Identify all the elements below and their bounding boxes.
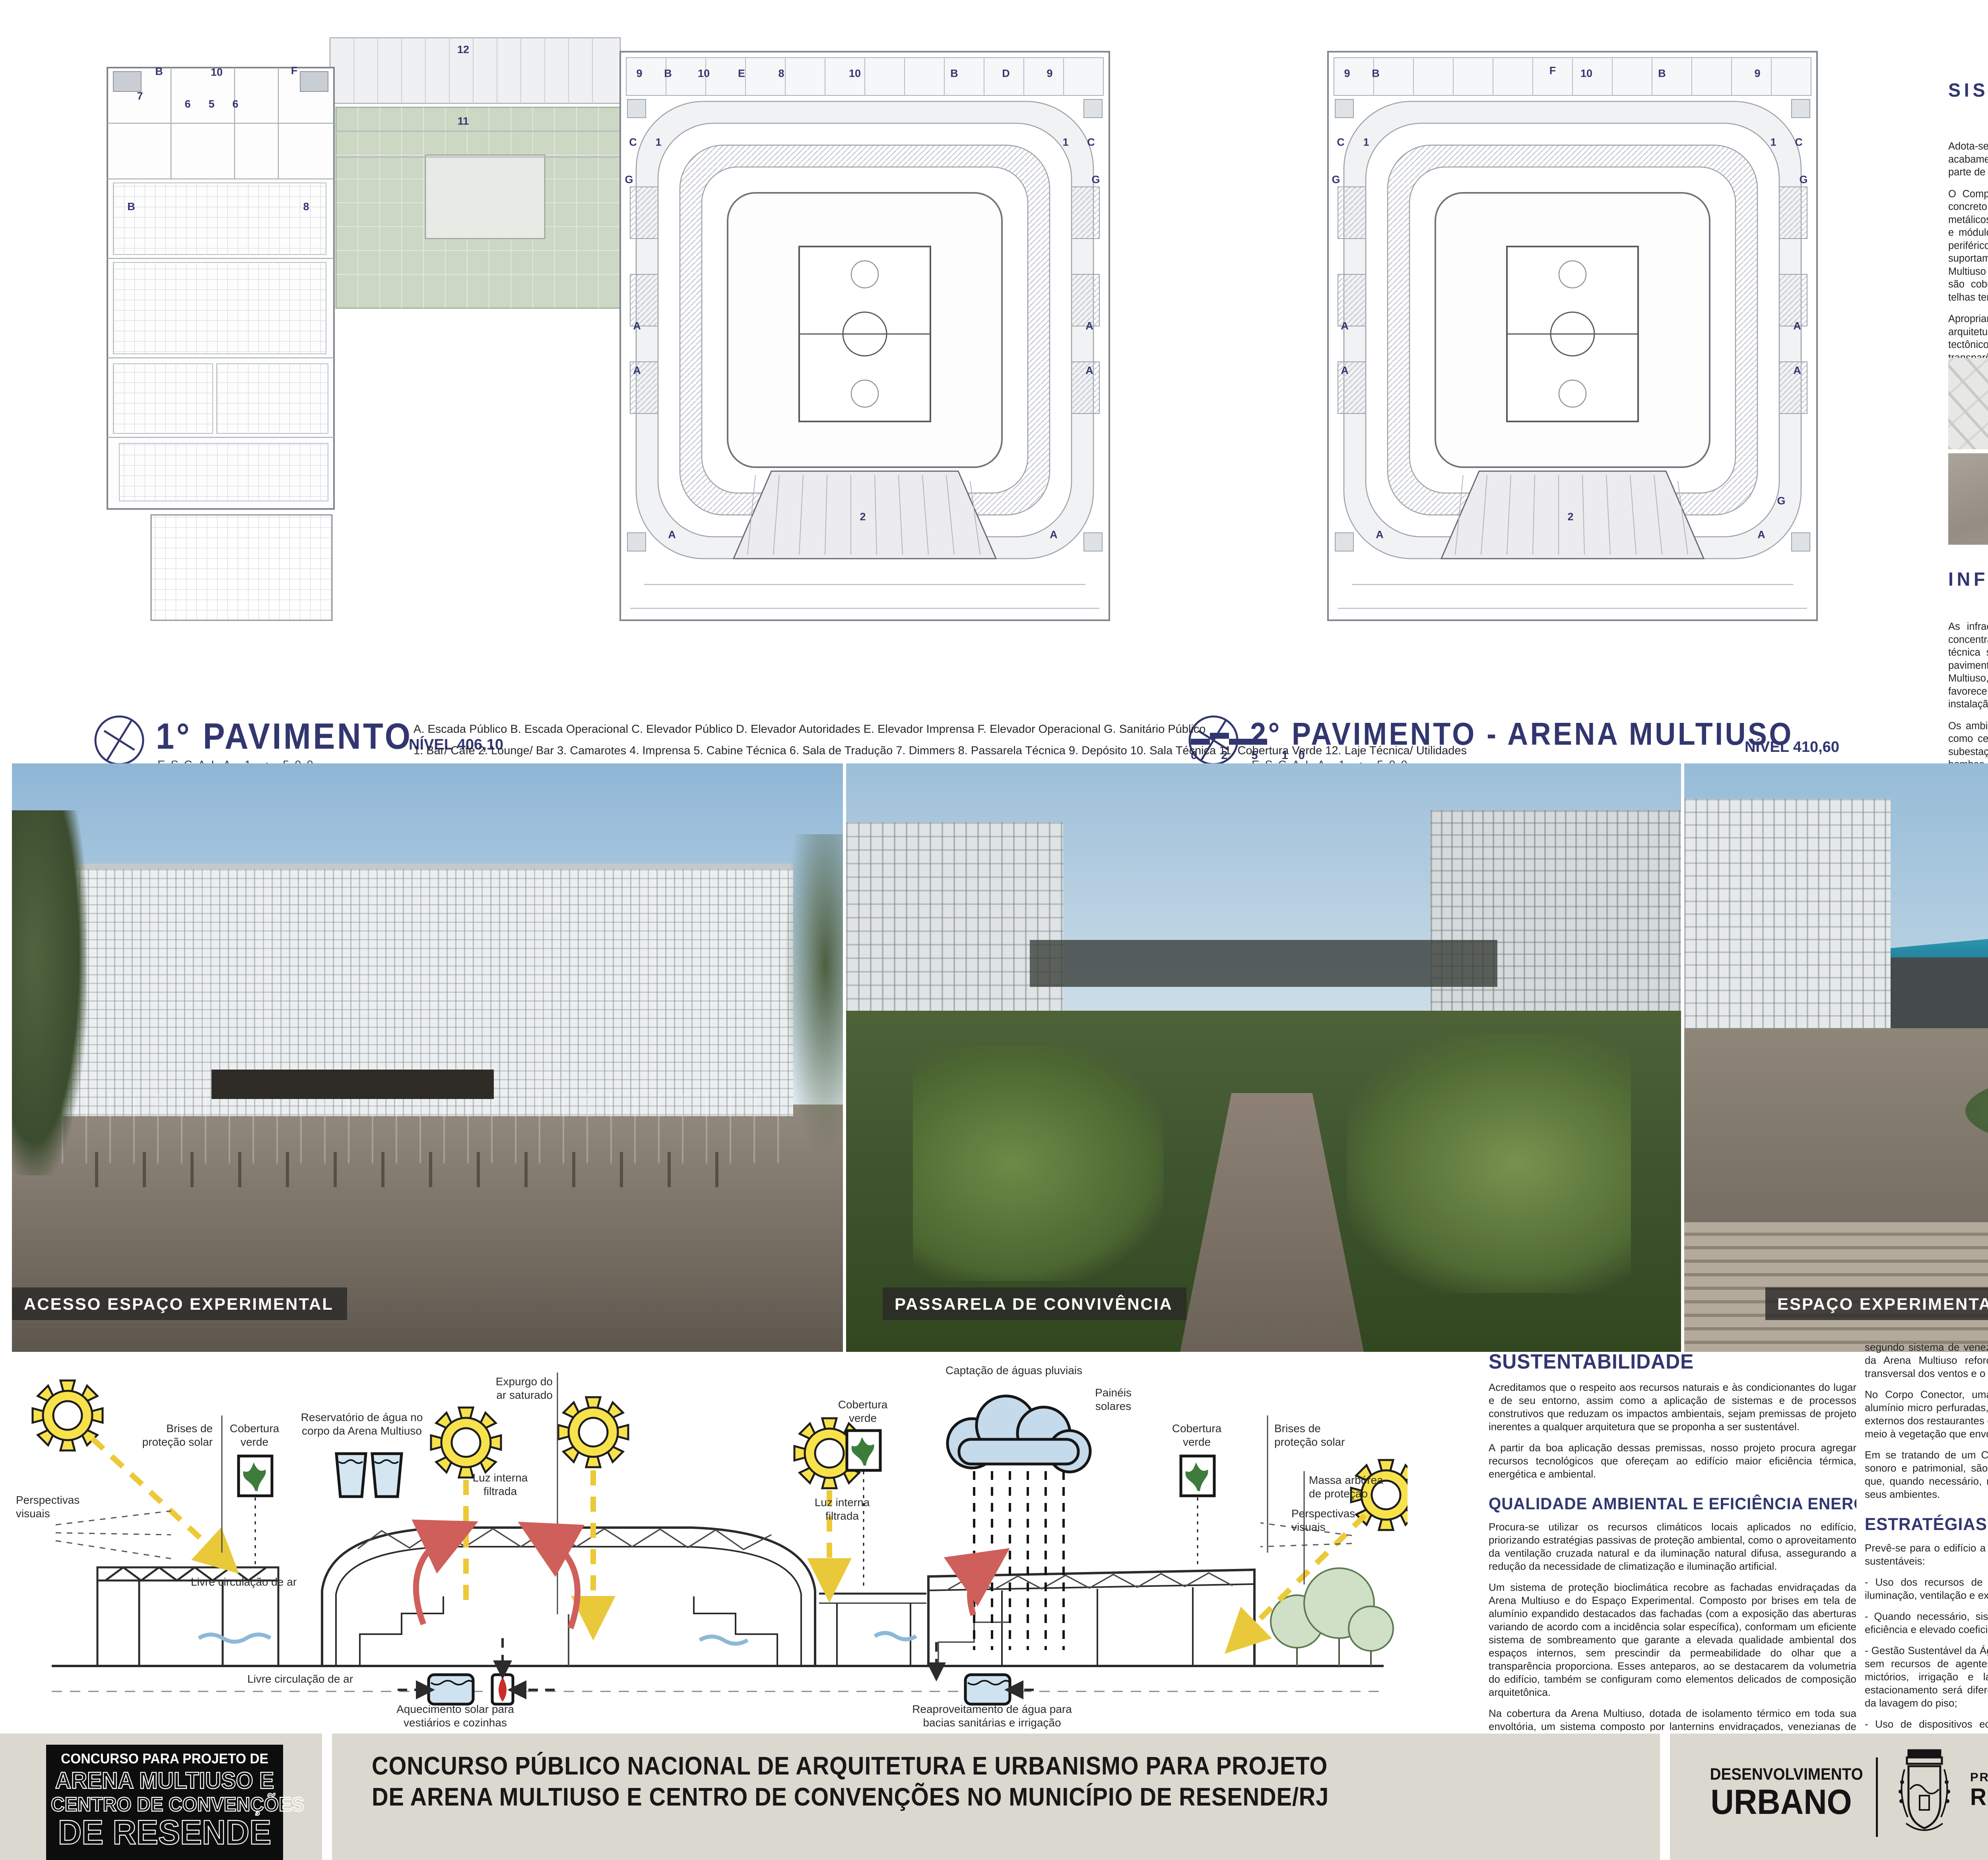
- estrategias-bullets: Prevê-se para o edifício a aplicação de …: [1865, 1542, 1988, 1732]
- paragraph: - Quando necessário, sistemas de climati…: [1865, 1610, 1988, 1636]
- paragraph: Adota-se como premissa a utilização de t…: [1948, 140, 1988, 179]
- logo-divider: [1876, 1757, 1878, 1837]
- col-sustentabilidade: SUSTENTABILIDADE Acreditamos que o respe…: [1489, 1350, 1856, 1732]
- diagram-label: Cobertura verde: [1172, 1422, 1222, 1449]
- footer-title-line2: DE ARENA MULTIUSO E CENTRO DE CONVENÇÕES…: [372, 1781, 1329, 1812]
- footer-box-line3: CENTRO DE CONVENÇÕES: [51, 1793, 278, 1815]
- diagram-label: Brises de proteção solar: [1274, 1422, 1345, 1449]
- footer-box-line2: ARENA MULTIUSO E: [51, 1769, 278, 1793]
- paragraph: A partir da boa aplicação dessas premiss…: [1489, 1441, 1856, 1481]
- logo-desenvolvimento-line2: URBANO: [1710, 1784, 1853, 1820]
- section-title-qualidade-ambiental: QUALIDADE AMBIENTAL E EFICIÊNCIA ENERGÉT…: [1489, 1494, 1842, 1513]
- diagram-label: Captação de águas pluviais: [945, 1364, 1082, 1377]
- plan-marker: G: [1799, 174, 1807, 186]
- paragraph: No Corpo Conector, uma cobertura envidra…: [1865, 1388, 1988, 1441]
- diagram-label: Cobertura verde: [230, 1422, 280, 1449]
- photo-estrutura-metalica-branca: [1948, 358, 1988, 449]
- logo-prefeitura-resende: PREFEITURA RESENDE: [1970, 1770, 1988, 1810]
- section-title-infra: INFRAESTRUTURAS TÉCNICAS E OPERACIONAIS: [1948, 569, 1988, 590]
- footer-title-line1: CONCURSO PÚBLICO NACIONAL DE ARQUITETURA…: [372, 1750, 1329, 1781]
- paragraph: O Complexo é estruturado por um sistema …: [1948, 188, 1988, 304]
- footer-box-line4: DE RESENDE: [51, 1815, 278, 1850]
- plan-marker: 1: [1770, 136, 1776, 149]
- plan-marker: A: [1793, 320, 1801, 332]
- resende-crest-icon: [1889, 1745, 1960, 1849]
- diagram-label: Massa arbórea de proteção: [1309, 1474, 1383, 1501]
- competition-board: { "board": { "page_number": "3/4" }, "pl…: [0, 0, 1988, 1860]
- diagram-label: Luz interna filtrada: [473, 1471, 528, 1498]
- diagram-label: Painéis solares: [1095, 1386, 1132, 1413]
- footer-title: CONCURSO PÚBLICO NACIONAL DE ARQUITETURA…: [372, 1750, 1435, 1812]
- paragraph: - Uso de dispositivos economizadores de …: [1865, 1718, 1988, 1732]
- paragraph: Prevê-se para o edifício a aplicação de …: [1865, 1542, 1988, 1568]
- sustentabilidade-paragraphs: Acreditamos que o respeito aos recursos …: [1489, 1381, 1856, 1481]
- plan-marker: F: [1549, 65, 1556, 77]
- plan-marker: C: [1795, 136, 1803, 149]
- plan-marker: A: [1793, 365, 1801, 377]
- diagram-label: Livre circulação de ar: [191, 1575, 297, 1589]
- estrategias-intro-paragraphs: segundo sistema de venezianas ao longo d…: [1865, 1341, 1988, 1501]
- col-estrategias: segundo sistema de venezianas ao longo d…: [1865, 1341, 1988, 1732]
- paragraph: Procura-se utilizar os recursos climátic…: [1489, 1520, 1856, 1573]
- render-espaco-experimental-e-arena: ESPAÇO EXPERIMENTAL E ARENA MULTIUSO: [1684, 763, 1988, 1352]
- section-title-sustentabilidade: SUSTENTABILIDADE: [1489, 1350, 1842, 1374]
- paragraph: Um sistema de proteção bioclimática reco…: [1489, 1581, 1856, 1699]
- logo-desenvolvimento-urbano: DESENVOLVIMENTO URBANO: [1704, 1765, 1859, 1820]
- diagram-label: Aquecimento solar para vestiários e cozi…: [396, 1703, 514, 1730]
- paragraph: - Uso dos recursos de projeto que propor…: [1865, 1576, 1988, 1602]
- plan-marker: 9: [1754, 68, 1760, 80]
- footer-black-box: CONCURSO PARA PROJETO DE ARENA MULTIUSO …: [46, 1745, 283, 1860]
- paragraph: - Gestão Sustentável da Água, com seu re…: [1865, 1644, 1988, 1710]
- plan-marker: G: [1777, 495, 1785, 507]
- qualidade-paragraphs: Procura-se utilizar os recursos climátic…: [1489, 1520, 1856, 1732]
- plan-marker: 10: [1580, 68, 1592, 80]
- paragraph: segundo sistema de venezianas ao longo d…: [1865, 1341, 1988, 1380]
- photo-concreto-aparente: [1948, 453, 1988, 545]
- logo-prefeitura-line1: PREFEITURA: [1970, 1770, 1988, 1784]
- diagram-label: Perspectivas visuais: [1291, 1507, 1355, 1534]
- logo-desenvolvimento-line1: DESENVOLVIMENTO: [1710, 1765, 1853, 1784]
- logo-prefeitura-line2: RESENDE: [1970, 1784, 1988, 1810]
- diagram-label: Reaproveitamento de água para bacias san…: [912, 1703, 1072, 1730]
- diagram-label: Livre circulação de ar: [247, 1672, 353, 1686]
- diagram-label: Luz interna filtrada: [815, 1496, 870, 1523]
- paragraph: Acreditamos que o respeito aos recursos …: [1489, 1381, 1856, 1433]
- footer-box-line1: CONCURSO PARA PROJETO DE: [51, 1751, 278, 1767]
- diagram-label: Expurgo do ar saturado: [496, 1375, 553, 1402]
- section-title-construtivos: SISTEMAS CONSTRUTIVOS, FECHAMENTOS E REV…: [1948, 80, 1988, 101]
- render-caption: ESPAÇO EXPERIMENTAL E ARENA MULTIUSO: [1765, 1287, 1988, 1320]
- plan-marker: 2: [1567, 511, 1573, 523]
- paragraph: Na cobertura da Arena Multiuso, dotada d…: [1489, 1707, 1856, 1732]
- plan-marker: A: [1757, 529, 1765, 541]
- diagram-label: Cobertura verde: [838, 1398, 888, 1425]
- paragraph: Em se tratando de um Complexo com necess…: [1865, 1448, 1988, 1501]
- section-title-estrategias: ESTRATÉGIAS E SOLUÇÕES SUSTENTÁVEIS: [1865, 1514, 1988, 1534]
- paragraph: As infraestruturas técnicas e operaciona…: [1948, 620, 1988, 711]
- plan-marker: B: [1658, 68, 1666, 80]
- diagram-labels-layer: Expurgo do ar saturadoReservatório de ág…: [0, 0, 1408, 1734]
- materials-photo-grid: [1948, 358, 1988, 545]
- diagram-label: Reservatório de água no corpo da Arena M…: [301, 1411, 423, 1438]
- diagram-label: Perspectivas visuais: [16, 1493, 80, 1520]
- diagram-label: Brises de proteção solar: [142, 1422, 213, 1449]
